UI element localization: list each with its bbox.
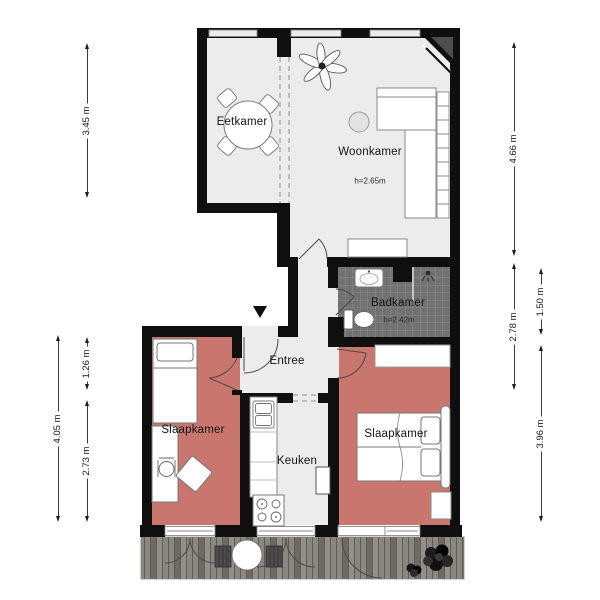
dim-arrow-icon <box>56 516 60 522</box>
balcony-door-right <box>338 527 385 536</box>
dim-arrow-icon <box>539 329 543 335</box>
room-label-badkamer: Badkamer <box>371 297 425 309</box>
dim-arrow-icon <box>85 192 89 198</box>
dim-arrow-icon <box>539 516 543 522</box>
wardrobe <box>375 345 450 367</box>
dim-arrow-icon <box>85 384 89 390</box>
deck-table <box>232 540 262 570</box>
dimension-4-05m: 4.05 m <box>51 335 65 522</box>
room-height-badkamer: h=2.42m <box>383 316 414 325</box>
window-top-1 <box>209 30 257 37</box>
floorplan-canvas: Eetkamer Woonkamer h=2.65m Badkamer h=2.… <box>0 0 600 600</box>
single-bed <box>153 339 197 423</box>
nightstand <box>431 492 451 519</box>
dimension-1-50m: 1.50 m <box>534 268 548 335</box>
balcony-door-kitchen <box>257 527 315 536</box>
room-label-entree: Entree <box>269 355 304 367</box>
dim-arrow-icon <box>85 516 89 522</box>
entrance-marker-icon <box>253 306 267 318</box>
dimension-4-66m: 4.66 m <box>507 42 521 256</box>
window-top-3 <box>370 30 420 37</box>
room-label-slaapkamer-right: Slaapkamer <box>364 428 427 440</box>
bathroom-cabinet <box>393 267 412 282</box>
window-bedroom-right <box>385 527 420 536</box>
stove-icon <box>253 495 284 526</box>
ceiling-lamp <box>349 112 369 132</box>
room-height-woonkamer: h=2.65m <box>354 177 385 186</box>
room-label-keuken: Keuken <box>277 455 317 467</box>
dimension-3-96m: 3.96 m <box>534 345 548 522</box>
radiator <box>437 92 449 218</box>
room-label-woonkamer: Woonkamer <box>338 146 402 158</box>
dimension-1-26m: 1.26 m <box>80 337 94 390</box>
sink-icon <box>355 269 383 287</box>
kitchen-sink <box>253 401 274 428</box>
double-bed <box>357 406 450 488</box>
toilet-icon <box>344 310 374 329</box>
dimension-2-73m: 2.73 m <box>80 400 94 522</box>
room-label-slaapkamer-left: Slaapkamer <box>161 424 224 436</box>
tv-cabinet <box>348 239 407 257</box>
window-top-2 <box>291 30 341 37</box>
kitchen-tall-cabinet <box>316 467 330 494</box>
dimension-3-45m: 3.45 m <box>80 43 94 198</box>
room-label-eetkamer: Eetkamer <box>217 116 268 128</box>
balcony-door-left <box>165 527 215 536</box>
dim-arrow-icon <box>512 384 516 390</box>
dim-arrow-icon <box>512 250 516 256</box>
dimension-2-78m: 2.78 m <box>507 263 521 390</box>
floor-corridor <box>297 257 328 337</box>
